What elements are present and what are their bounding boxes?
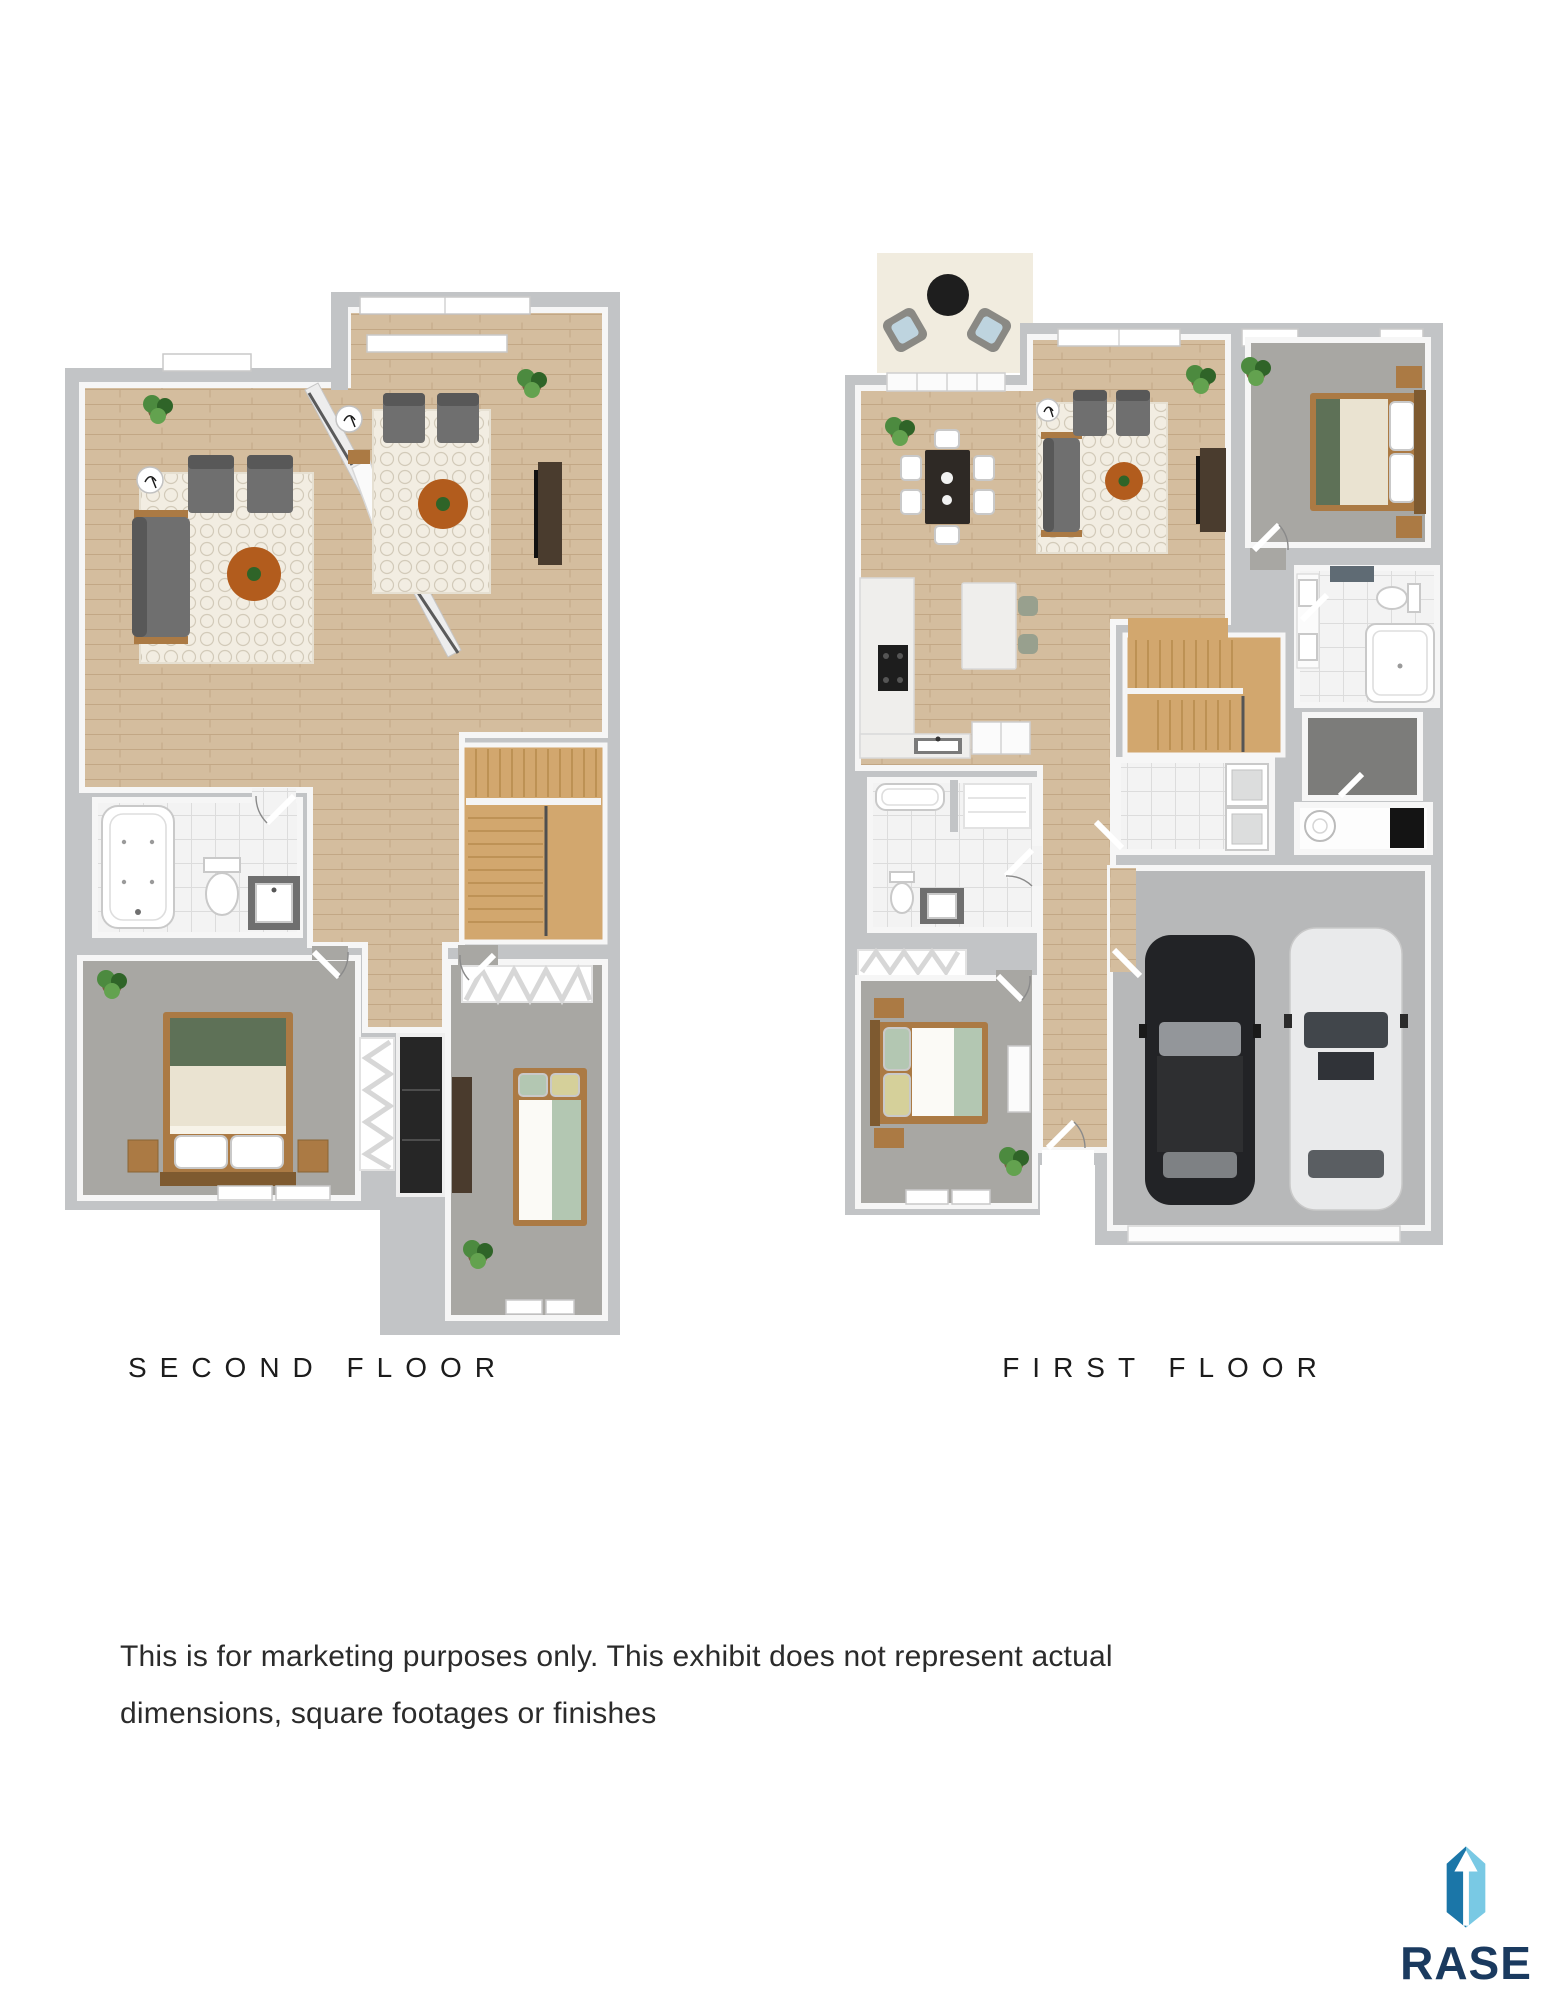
rase-logo-icon <box>1437 1842 1495 1932</box>
loft-window-2 <box>367 335 507 352</box>
loft-tv-console <box>534 462 562 565</box>
upstairs-bathroom <box>95 788 300 935</box>
washer <box>1226 764 1268 806</box>
hall-bathroom <box>870 780 1042 930</box>
dresser <box>1008 1046 1030 1112</box>
kitchen-sink <box>914 737 962 755</box>
rase-logo: RASE <box>1386 1842 1545 1986</box>
garage-door <box>1128 1226 1400 1242</box>
nightstand <box>128 1140 158 1172</box>
bathroom-vanity <box>920 888 964 924</box>
nightstand-2 <box>298 1140 328 1172</box>
rase-wordmark: RASE <box>1386 1940 1545 1986</box>
toilet <box>1377 584 1420 612</box>
floor-plan-sheet: SECOND FLOOR FIRST FLOOR This is for mar… <box>0 0 1545 2000</box>
dryer <box>1226 808 1268 850</box>
island-stool-2 <box>1018 634 1038 654</box>
patio-table <box>927 274 969 316</box>
living-armchair-2 <box>1116 390 1150 436</box>
front-bedroom <box>1241 340 1428 570</box>
stove <box>878 645 908 691</box>
front-bed <box>1310 390 1426 514</box>
nightstand-2 <box>1396 516 1422 538</box>
mechanical-room <box>1297 805 1430 852</box>
living-floor-lamp <box>1037 399 1059 421</box>
first-floor-label: FIRST FLOOR <box>906 1352 1426 1392</box>
living-tv-console <box>1196 448 1226 532</box>
bathtub <box>876 784 944 810</box>
living-window <box>163 354 251 371</box>
island-stool <box>1018 596 1038 616</box>
living-armchair-2 <box>247 455 293 513</box>
loft-floor-lamp <box>336 406 362 432</box>
downstairs-staircase <box>1125 618 1283 755</box>
white-car <box>1284 928 1408 1210</box>
bath-mat <box>1330 566 1374 582</box>
downstairs-bedroom <box>858 950 1035 1206</box>
sliding-glass-door <box>887 373 1005 391</box>
disclaimer-line-2: dimensions, square footages or finishes <box>120 1697 656 1730</box>
bedroom-window-3 <box>906 1190 948 1204</box>
kitchen-island <box>962 583 1016 669</box>
bedroom-window-4 <box>546 1300 574 1314</box>
logo-arrow-shaft <box>1463 1870 1469 1926</box>
bathroom-vanity <box>248 876 300 930</box>
water-heater <box>1305 811 1335 841</box>
dining-table <box>925 450 970 524</box>
loft-wall-stub <box>331 292 348 390</box>
nightstand <box>874 998 904 1018</box>
dresser <box>452 1077 472 1193</box>
second-bedroom <box>448 945 605 1318</box>
second-floor-label: SECOND FLOOR <box>58 1352 578 1392</box>
primary-bedroom <box>80 946 358 1200</box>
bedroom-window-2 <box>276 1186 330 1200</box>
bedroom-window-3 <box>506 1300 542 1314</box>
main-bathroom <box>1297 566 1437 705</box>
two-car-garage <box>1110 868 1428 1242</box>
primary-bed <box>160 1012 296 1186</box>
nightstand-2 <box>874 1128 904 1148</box>
walk-in-closet <box>1305 715 1420 798</box>
hall-closets <box>360 1035 444 1195</box>
black-car <box>1139 935 1261 1205</box>
second-floor-plan <box>55 245 635 1355</box>
bathroom-vanity <box>1297 574 1319 668</box>
laundry-room <box>1096 760 1272 852</box>
loft-armchair-2 <box>437 393 479 443</box>
disclaimer-text: This is for marketing purposes only. Thi… <box>120 1628 1160 1742</box>
upstairs-stairwell <box>462 745 605 942</box>
first-floor-plan <box>660 195 1460 1355</box>
pantry-closet <box>964 784 1030 828</box>
bathtub <box>102 806 174 928</box>
living-armchair <box>188 455 234 513</box>
bedroom-window <box>218 1186 272 1200</box>
living-floor-lamp <box>137 467 163 493</box>
wardrobe <box>398 1035 444 1195</box>
bedroom-window-4 <box>952 1190 990 1204</box>
patio <box>877 253 1033 373</box>
second-bed <box>513 1068 587 1226</box>
side-table <box>348 450 370 464</box>
toilet <box>204 858 240 915</box>
living-sofa <box>132 510 190 644</box>
living-armchair <box>1073 390 1107 436</box>
loft-armchair <box>383 393 425 443</box>
guest-bed <box>870 1020 988 1126</box>
furnace <box>1390 808 1424 848</box>
disclaimer-line-1: This is for marketing purposes only. Thi… <box>120 1640 1113 1673</box>
nightstand <box>1396 366 1422 388</box>
living-sofa <box>1041 432 1082 537</box>
bathtub <box>1366 624 1434 702</box>
toilet <box>890 872 914 913</box>
